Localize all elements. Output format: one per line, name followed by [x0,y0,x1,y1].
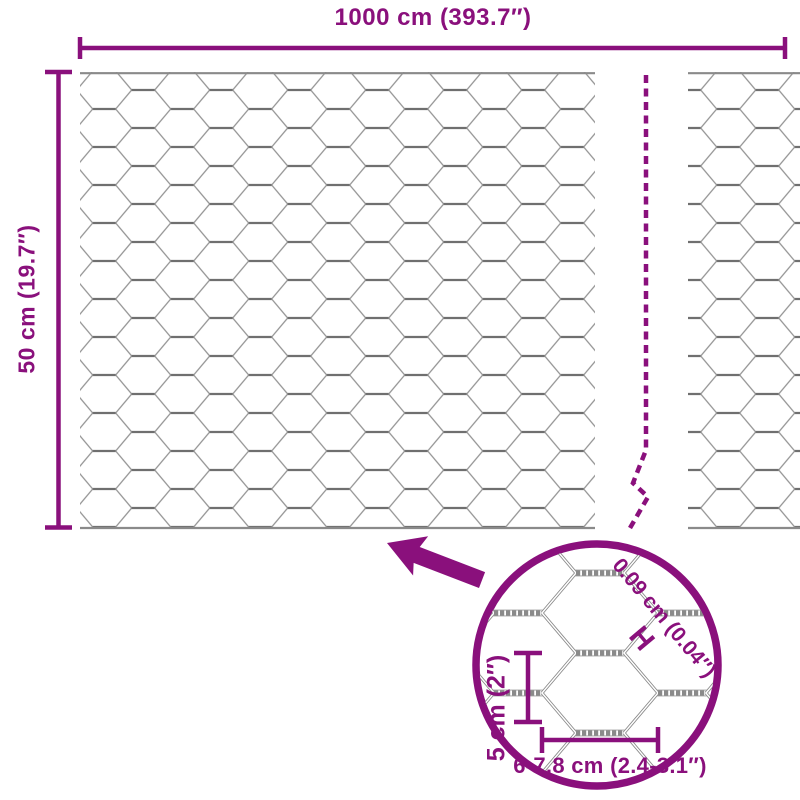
break-line [630,75,648,528]
mesh-panel-right [688,72,800,529]
mesh-panel-main [80,72,595,529]
cell-height-label: 5 cm (2″) [485,655,510,761]
left-measure-line [45,72,72,528]
height-dimension-label: 50 cm (19.7″) [16,224,39,373]
width-dimension-label: 1000 cm (393.7″) [335,6,532,30]
zoom-arrow [379,523,489,599]
diagram-canvas [0,0,800,800]
magnifier-circle [476,544,718,786]
product-dimension-diagram: 1000 cm (393.7″) 50 cm (19.7″) 0.09 cm (… [0,0,800,800]
cell-width-label: 6-7,8 cm (2.4-3.1″) [513,755,707,777]
top-measure-line [80,37,785,59]
